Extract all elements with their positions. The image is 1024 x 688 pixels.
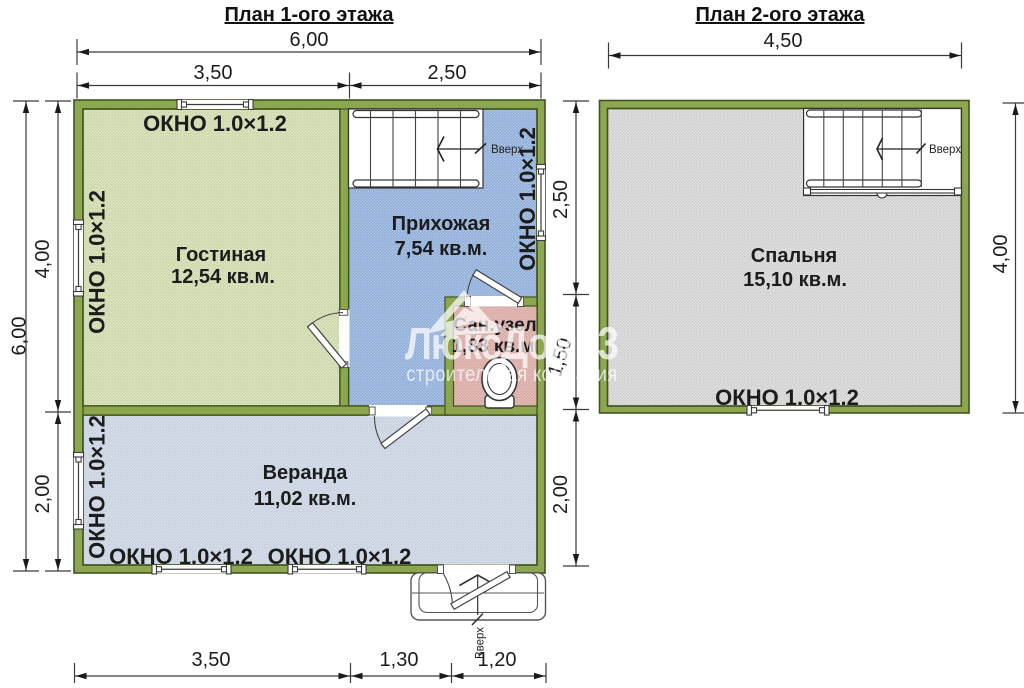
svg-text:ЛюксДом53: ЛюксДом53: [405, 318, 618, 369]
svg-text:ОКНО 1.0×1.2: ОКНО 1.0×1.2: [85, 415, 110, 559]
svg-text:11,02 кв.м.: 11,02 кв.м.: [254, 488, 357, 510]
svg-text:Прихожая: Прихожая: [392, 213, 491, 235]
svg-text:12,54 кв.м.: 12,54 кв.м.: [171, 266, 275, 288]
svg-text:4,00: 4,00: [990, 235, 1012, 274]
svg-text:План 1-ого этажа: План 1-ого этажа: [225, 4, 395, 26]
svg-text:ОКНО 1.0×1.2: ОКНО 1.0×1.2: [143, 111, 287, 136]
svg-text:Гостиная: Гостиная: [176, 244, 266, 266]
svg-text:строительная компания: строительная компания: [406, 363, 617, 387]
svg-text:План 2-ого этажа: План 2-ого этажа: [696, 4, 866, 26]
svg-text:Спальня: Спальня: [751, 245, 837, 267]
svg-text:7,54 кв.м.: 7,54 кв.м.: [395, 238, 488, 260]
svg-text:ОКНО 1.0×1.2: ОКНО 1.0×1.2: [268, 544, 412, 569]
svg-text:15,10 кв.м.: 15,10 кв.м.: [743, 269, 847, 291]
svg-text:2,00: 2,00: [550, 475, 572, 514]
svg-text:ОКНО 1.0×1.2: ОКНО 1.0×1.2: [85, 190, 110, 334]
svg-text:1,20: 1,20: [478, 649, 517, 671]
svg-text:2,00: 2,00: [32, 475, 54, 514]
svg-text:2,50: 2,50: [428, 62, 467, 84]
svg-text:6,00: 6,00: [9, 317, 31, 356]
svg-text:ОКНО 1.0×1.2: ОКНО 1.0×1.2: [715, 385, 859, 410]
svg-text:4,50: 4,50: [764, 30, 803, 52]
svg-text:3,50: 3,50: [194, 62, 233, 84]
svg-text:ОКНО 1.0×1.2: ОКНО 1.0×1.2: [515, 127, 540, 271]
svg-text:6,00: 6,00: [290, 29, 329, 51]
svg-text:4,00: 4,00: [32, 240, 54, 279]
svg-text:1,30: 1,30: [380, 649, 419, 671]
svg-text:2,50: 2,50: [550, 180, 572, 219]
svg-text:ОКНО 1.0×1.2: ОКНО 1.0×1.2: [109, 544, 253, 569]
svg-text:Вверх: Вверх: [929, 144, 961, 156]
svg-text:3,50: 3,50: [192, 649, 231, 671]
svg-text:Веранда: Веранда: [263, 462, 349, 484]
